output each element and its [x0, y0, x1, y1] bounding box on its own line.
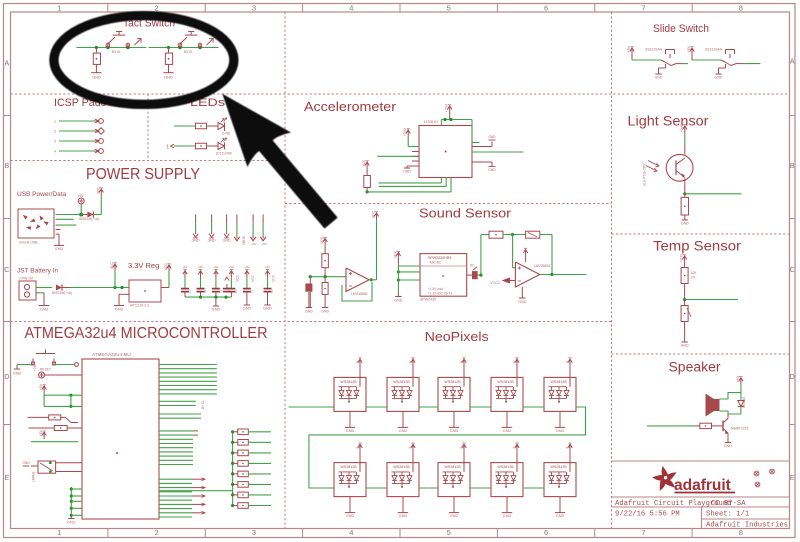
svg-text:B0511W(+1A): B0511W(+1A): [79, 217, 99, 221]
svg-text:WS2812B: WS2812B: [497, 380, 514, 384]
svg-text:E: E: [4, 475, 9, 482]
svg-text:6: 6: [544, 4, 548, 13]
svg-text:+5V: +5V: [408, 360, 413, 364]
svg-text:ALS-PT19-315C: ALS-PT19-315C: [643, 162, 647, 186]
svg-text:GND: GND: [164, 75, 173, 80]
svg-text:VCC: VCC: [320, 236, 324, 244]
svg-text:SPW2430: SPW2430: [420, 298, 436, 302]
svg-text:SPW2430HR5: SPW2430HR5: [428, 256, 451, 260]
svg-text:GND: GND: [488, 135, 496, 139]
svg-text:Light Sensor: Light Sensor: [628, 114, 710, 129]
svg-text:2-PIN JST: 2-PIN JST: [19, 277, 34, 281]
svg-text:GND: GND: [394, 299, 402, 303]
svg-text:VCC: VCC: [272, 274, 276, 281]
svg-text:B3 SL: B3 SL: [184, 50, 193, 54]
svg-text:GND: GND: [22, 461, 30, 465]
svg-text:+5V: +5V: [244, 265, 249, 269]
svg-text:1: 1: [54, 120, 56, 124]
svg-text:LIS3DH: LIS3DH: [424, 119, 438, 124]
svg-text:GND: GND: [208, 239, 216, 243]
svg-text:GND: GND: [724, 444, 732, 448]
svg-text:1: 1: [57, 528, 61, 537]
svg-text:WS2812B: WS2812B: [497, 465, 514, 469]
svg-text:GND: GND: [403, 170, 411, 174]
svg-text:SS312SAH: SS312SAH: [645, 48, 663, 52]
svg-text:LMV358IM: LMV358IM: [351, 292, 368, 296]
svg-text:MMBT2222: MMBT2222: [731, 427, 749, 431]
svg-text:GND: GND: [263, 306, 272, 311]
svg-text:GND: GND: [488, 168, 496, 172]
svg-text:A: A: [790, 59, 795, 66]
svg-text:+5V: +5V: [39, 429, 43, 436]
svg-text:GND: GND: [450, 514, 459, 518]
svg-text:3: 3: [54, 140, 56, 144]
svg-text:WS2812B: WS2812B: [340, 465, 357, 469]
svg-text:+5V: +5V: [459, 360, 464, 364]
svg-text:Sheet: 1/1: Sheet: 1/1: [706, 511, 749, 519]
svg-text:D+ D-: D+ D-: [201, 400, 205, 409]
svg-text:D: D: [4, 374, 9, 381]
svg-text:+5V: +5V: [512, 445, 517, 449]
svg-text:+5V: +5V: [355, 360, 360, 364]
svg-text:GND: GND: [223, 239, 231, 243]
svg-text:+5V: +5V: [182, 265, 187, 269]
svg-text:2: 2: [154, 4, 158, 13]
svg-text:B3 SL: B3 SL: [112, 50, 121, 54]
svg-text:A: A: [4, 61, 9, 68]
svg-text:GND: GND: [13, 372, 22, 376]
svg-text:3.3V Reg: 3.3V Reg: [128, 261, 159, 270]
svg-text:SS312SAH: SS312SAH: [705, 48, 723, 52]
svg-text:WS2812B: WS2812B: [340, 380, 357, 384]
svg-text:4: 4: [349, 4, 353, 13]
svg-text:NeoPixels: NeoPixels: [425, 329, 490, 344]
svg-text:+5V: +5V: [512, 360, 517, 364]
svg-text:1u: 1u: [270, 289, 274, 293]
svg-text:+5V: +5V: [39, 383, 43, 390]
svg-text:1N4148: 1N4148: [742, 397, 746, 408]
svg-text:6: 6: [544, 528, 548, 537]
svg-text:2: 2: [154, 528, 158, 537]
svg-text:+5V: +5V: [261, 242, 266, 246]
svg-text:2: 2: [54, 130, 56, 134]
svg-text:+5V: +5V: [198, 265, 203, 269]
svg-text:Temp Sensor: Temp Sensor: [653, 239, 742, 254]
svg-text:1u: 1u: [203, 289, 207, 293]
svg-text:+5V: +5V: [687, 45, 691, 52]
svg-text:Accelerometer: Accelerometer: [304, 99, 397, 114]
svg-text:+3V3: +3V3: [680, 254, 684, 262]
svg-text:(D13) R89: (D13) R89: [216, 152, 232, 156]
svg-text:GND: GND: [305, 310, 313, 314]
svg-text:9/22/16 5:56 PM: 9/22/16 5:56 PM: [615, 511, 680, 519]
svg-text:+5V: +5V: [627, 45, 631, 52]
svg-text:+VS: +VS: [362, 159, 366, 166]
svg-text:WS2812B: WS2812B: [550, 465, 567, 469]
svg-text:WS2812B: WS2812B: [393, 380, 410, 384]
svg-text:GND: GND: [715, 76, 723, 80]
svg-text:GND: GND: [55, 247, 64, 251]
svg-text:GND: GND: [192, 239, 200, 243]
svg-text:GND: GND: [399, 514, 408, 518]
svg-text:WS2812B: WS2812B: [444, 380, 461, 384]
svg-text:TL 25-40C 26-T3: TL 25-40C 26-T3: [428, 291, 452, 295]
svg-text:USB Power/Data: USB Power/Data: [17, 191, 67, 198]
svg-text:5: 5: [447, 528, 451, 537]
svg-text:mini-B USB: mini-B USB: [19, 241, 38, 245]
svg-text:B: B: [4, 163, 9, 170]
svg-text:VCC: VCC: [96, 187, 100, 195]
svg-text:VCC: VCC: [393, 250, 397, 258]
svg-text:WS2812B: WS2812B: [444, 465, 461, 469]
svg-text:MIC-BO: MIC-BO: [430, 261, 442, 265]
svg-text:1: 1: [57, 4, 61, 13]
svg-text:GND: GND: [67, 521, 76, 525]
svg-text:16MHz: 16MHz: [32, 471, 36, 482]
svg-text:5: 5: [447, 4, 451, 13]
svg-text:ATMEGA32u4 MICROCONTROLLER: ATMEGA32u4 MICROCONTROLLER: [25, 325, 268, 342]
svg-text:GND: GND: [450, 429, 459, 433]
svg-text:+5V: +5V: [459, 445, 464, 449]
svg-text:+5V: +5V: [565, 445, 570, 449]
svg-text:GND: GND: [518, 300, 526, 304]
svg-text:+3V3: +3V3: [445, 104, 449, 112]
svg-text:GND: GND: [346, 514, 355, 518]
svg-text:GND: GND: [681, 222, 689, 226]
svg-text:+5V: +5V: [408, 445, 413, 449]
svg-text:+5V: +5V: [229, 265, 234, 269]
svg-text:RESET: RESET: [40, 368, 51, 372]
svg-text:1u: 1u: [234, 289, 238, 293]
svg-text:8: 8: [739, 4, 743, 13]
svg-text:GND: GND: [242, 306, 251, 311]
svg-text:1u: 1u: [188, 289, 192, 293]
svg-text:+5V: +5V: [565, 360, 570, 364]
svg-text:1u: 1u: [218, 289, 222, 293]
svg-text:Adafruit Industries: Adafruit Industries: [706, 522, 788, 530]
svg-text:GND: GND: [503, 429, 512, 433]
svg-text:VCC: VCC: [251, 274, 255, 281]
svg-text:LMV358IM: LMV358IM: [534, 264, 551, 268]
svg-text:GND: GND: [211, 307, 220, 312]
svg-text:GND: GND: [503, 514, 512, 518]
svg-text:VCC: VCC: [164, 263, 168, 271]
svg-text:GND: GND: [115, 308, 124, 312]
svg-text:1u: 1u: [249, 289, 253, 293]
svg-text:4: 4: [54, 150, 56, 154]
svg-text:+5V: +5V: [213, 265, 218, 269]
svg-text:+5V: +5V: [251, 242, 256, 246]
svg-text:GND: GND: [556, 429, 565, 433]
svg-text:VCC: VCC: [372, 211, 376, 219]
svg-text:+5V: +5V: [265, 265, 270, 269]
svg-text:Speaker: Speaker: [669, 360, 722, 375]
svg-text:C: C: [4, 267, 9, 274]
svg-text:4: 4: [349, 528, 353, 537]
svg-text:GND: GND: [92, 75, 101, 80]
svg-text:VCC: VCC: [235, 274, 239, 281]
svg-text:+5V: +5V: [355, 445, 360, 449]
svg-text:1: 1: [166, 145, 169, 151]
svg-text:D: D: [790, 374, 795, 381]
svg-text:D-R8: D-R8: [222, 132, 230, 136]
svg-text:VCC: VCC: [110, 262, 114, 270]
svg-text:CC BY-SA: CC BY-SA: [711, 500, 746, 508]
svg-text:+5V: +5V: [78, 194, 85, 198]
svg-text:ATMEGA32U4-MU: ATMEGA32U4-MU: [92, 352, 131, 357]
svg-text:3: 3: [252, 4, 256, 13]
svg-text:GND: GND: [556, 514, 565, 518]
svg-text:JST Battery In: JST Battery In: [17, 268, 58, 275]
svg-text:GND: GND: [681, 344, 689, 348]
svg-text:GND: GND: [321, 310, 329, 314]
svg-text:1%: 1%: [691, 276, 696, 280]
svg-text:Slide Switch: Slide Switch: [653, 23, 709, 35]
svg-text:7: 7: [641, 4, 645, 13]
svg-text:B: B: [790, 163, 795, 170]
svg-text:WS2812B: WS2812B: [393, 465, 410, 469]
svg-text:DC: DC: [470, 264, 475, 268]
svg-text:WS2812B: WS2812B: [550, 380, 567, 384]
svg-text:+5V: +5V: [736, 375, 740, 382]
svg-text:C: C: [790, 267, 795, 274]
svg-text:+3V3: +3V3: [403, 128, 407, 136]
svg-text:GND: GND: [40, 308, 49, 312]
svg-text:GND: GND: [346, 429, 355, 433]
svg-text:10K: 10K: [691, 271, 698, 275]
svg-text:Sound Sensor: Sound Sensor: [419, 206, 512, 221]
svg-text:GND: GND: [399, 429, 408, 433]
svg-text:+5V: +5V: [33, 364, 37, 371]
svg-text:E: E: [790, 475, 795, 482]
svg-text:AP2112K-3.3: AP2112K-3.3: [130, 304, 149, 308]
svg-text:POWER SUPPLY: POWER SUPPLY: [86, 166, 200, 183]
svg-text:GND: GND: [655, 76, 663, 80]
svg-text:3: 3: [252, 528, 256, 537]
svg-text:B0571W(+1A): B0571W(+1A): [52, 291, 72, 295]
svg-text:adafruit: adafruit: [674, 477, 731, 494]
svg-text:VBUS: VBUS: [242, 235, 246, 245]
svg-text:VCC2: VCC2: [490, 281, 500, 285]
svg-text:7: 7: [641, 528, 645, 537]
svg-text:+3V3: +3V3: [680, 124, 684, 132]
